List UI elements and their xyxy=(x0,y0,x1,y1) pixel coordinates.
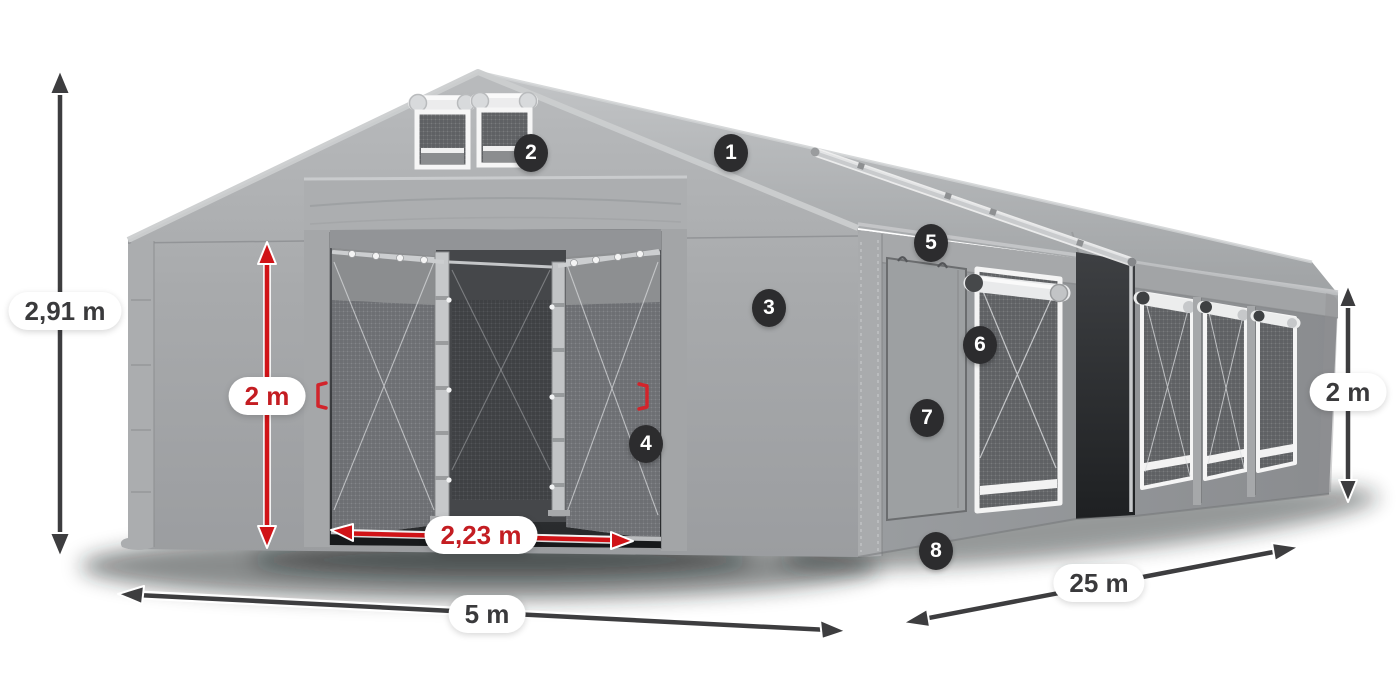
side-wall-front-module xyxy=(856,230,1135,557)
dim-side-wall-height: 2 m xyxy=(1310,373,1387,411)
tent-dimension-diagram: 1 2 3 4 5 6 7 8 2,91 m 2 m 2,23 m 5 m 25… xyxy=(0,0,1400,700)
door-header xyxy=(304,177,687,238)
callout-1[interactable]: 1 xyxy=(714,134,748,172)
dim-total-height: 2,91 m xyxy=(9,292,122,330)
dim-front-width: 5 m xyxy=(449,595,526,633)
dim-door-height: 2 m xyxy=(229,377,306,415)
callout-3[interactable]: 3 xyxy=(752,289,786,327)
callout-6[interactable]: 6 xyxy=(963,326,997,364)
front-opening xyxy=(318,229,661,548)
vent-1 xyxy=(410,95,475,168)
callout-4[interactable]: 4 xyxy=(629,425,663,463)
callout-7[interactable]: 7 xyxy=(910,399,944,437)
callout-5[interactable]: 5 xyxy=(914,224,948,262)
rear-window-1 xyxy=(1137,292,1196,489)
dim-door-width: 2,23 m xyxy=(425,516,538,554)
rear-window-3 xyxy=(1254,311,1298,472)
module-gap xyxy=(1076,252,1135,519)
front-corner-pillar xyxy=(121,240,154,550)
rear-window-2 xyxy=(1200,301,1249,479)
side-window xyxy=(965,269,1068,511)
callout-8[interactable]: 8 xyxy=(919,532,953,570)
right-door-post xyxy=(661,229,687,551)
callout-2[interactable]: 2 xyxy=(514,134,548,172)
side-door xyxy=(887,257,966,520)
tent-illustration xyxy=(0,0,1400,700)
dim-side-length: 25 m xyxy=(1053,564,1144,602)
